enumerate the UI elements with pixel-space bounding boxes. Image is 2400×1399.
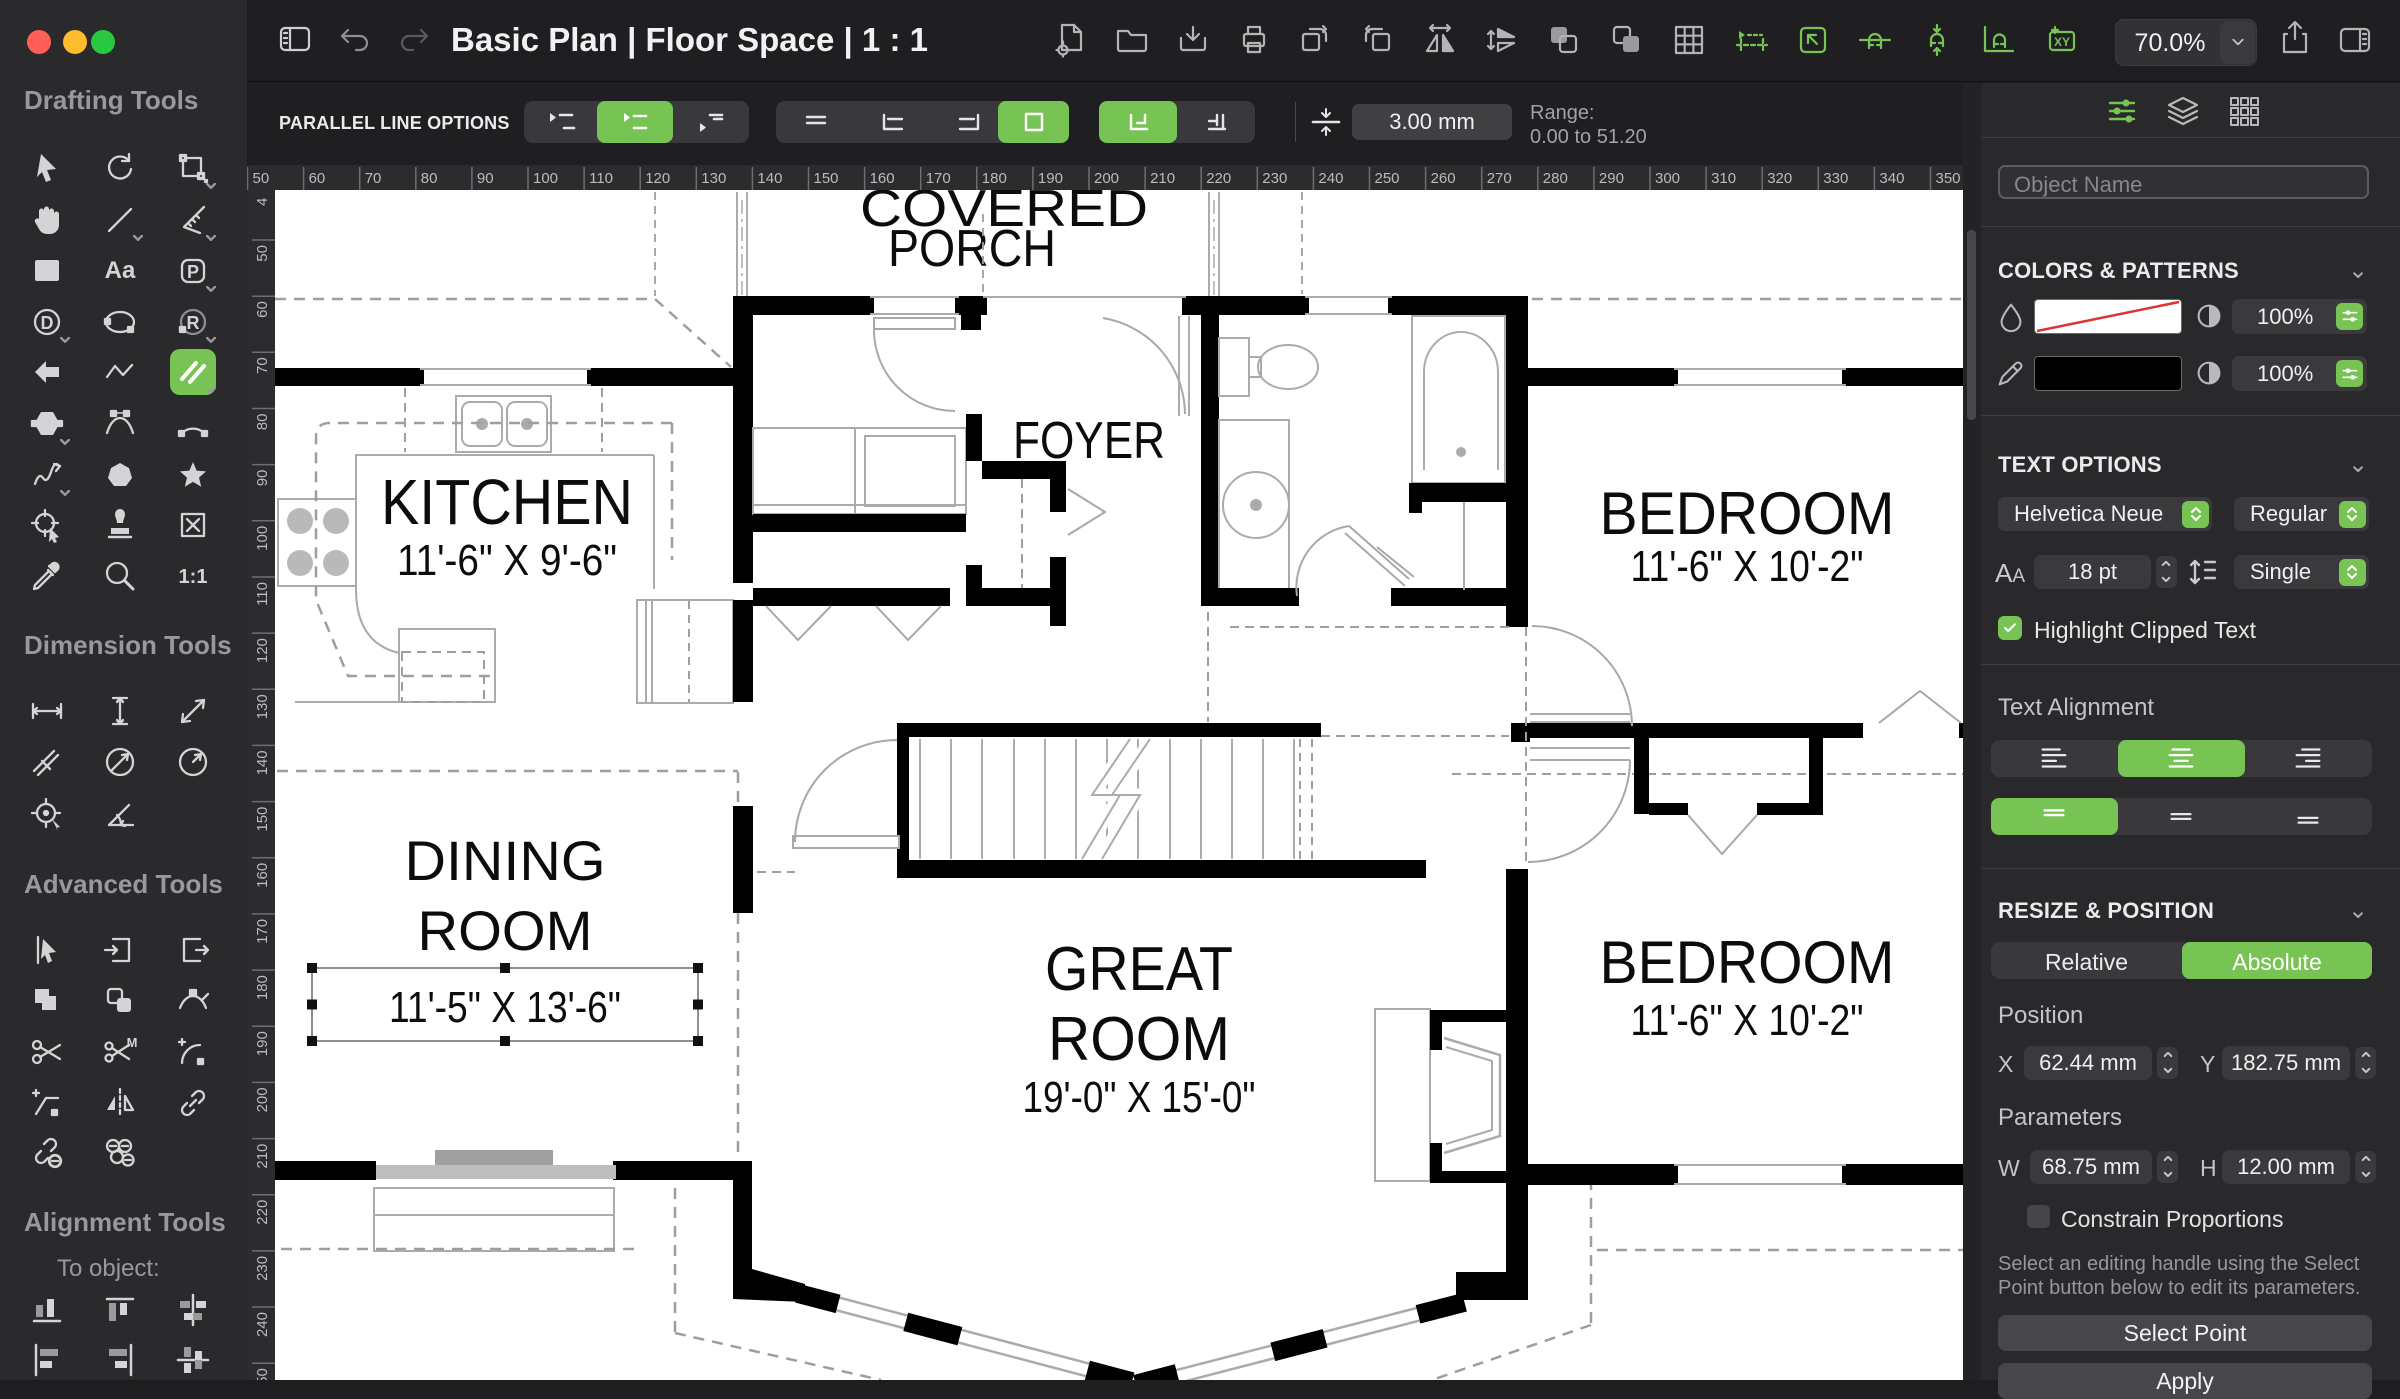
svg-text:140: 140 [757, 170, 782, 187]
svg-text:KITCHEN: KITCHEN [381, 466, 633, 538]
svg-text:350: 350 [1936, 170, 1961, 187]
svg-text:230: 230 [254, 1256, 271, 1281]
svg-text:280: 280 [1543, 170, 1568, 187]
svg-text:Aa: Aa [105, 257, 136, 284]
svg-text:240: 240 [254, 1312, 271, 1337]
svg-text:230: 230 [1262, 170, 1287, 187]
svg-text:330: 330 [1823, 170, 1848, 187]
svg-text:170: 170 [926, 170, 951, 187]
svg-text:PORCH: PORCH [888, 220, 1056, 278]
svg-text:4: 4 [254, 198, 271, 206]
svg-text:180: 180 [982, 170, 1007, 187]
svg-text:70: 70 [365, 170, 382, 187]
svg-text:11'-5" X 13'-6": 11'-5" X 13'-6" [389, 983, 621, 1032]
svg-text:60: 60 [309, 170, 326, 187]
svg-text:70: 70 [254, 357, 271, 374]
svg-text:11'-6" X 10'-2": 11'-6" X 10'-2" [1631, 996, 1864, 1045]
svg-text:190: 190 [254, 1031, 271, 1056]
svg-text:320: 320 [1767, 170, 1792, 187]
svg-text:XY: XY [2054, 35, 2070, 49]
svg-text:BEDROOM: BEDROOM [1600, 929, 1895, 996]
svg-text:80: 80 [421, 170, 438, 187]
svg-text:210: 210 [1150, 170, 1175, 187]
svg-text:GREAT: GREAT [1045, 935, 1233, 1004]
svg-text:200: 200 [1094, 170, 1119, 187]
svg-text:11'-6" X 10'-2": 11'-6" X 10'-2" [1631, 542, 1864, 591]
svg-text:D: D [41, 313, 54, 333]
svg-text:300: 300 [1655, 170, 1680, 187]
svg-text:290: 290 [1599, 170, 1624, 187]
svg-text:220: 220 [1206, 170, 1231, 187]
svg-text:60: 60 [254, 301, 271, 318]
svg-text:150: 150 [814, 170, 839, 187]
svg-text:270: 270 [1487, 170, 1512, 187]
svg-text:150: 150 [254, 807, 271, 832]
svg-text:140: 140 [254, 750, 271, 775]
svg-text:19'-0" X 15'-0": 19'-0" X 15'-0" [1023, 1073, 1256, 1122]
svg-text:ROOM: ROOM [1048, 1005, 1230, 1074]
svg-text:11'-6" X 9'-6": 11'-6" X 9'-6" [397, 536, 617, 585]
svg-text:80: 80 [254, 414, 271, 431]
svg-text:130: 130 [701, 170, 726, 187]
svg-text:100: 100 [533, 170, 558, 187]
svg-text:220: 220 [254, 1200, 271, 1225]
svg-text:160: 160 [870, 170, 895, 187]
svg-text:260: 260 [1431, 170, 1456, 187]
svg-text:ROOM: ROOM [418, 899, 593, 962]
svg-text:100: 100 [254, 526, 271, 551]
svg-text:310: 310 [1711, 170, 1736, 187]
svg-text:R: R [187, 313, 200, 333]
svg-text:130: 130 [254, 694, 271, 719]
svg-text:200: 200 [254, 1087, 271, 1112]
svg-text:P: P [187, 262, 199, 282]
svg-text:110: 110 [589, 170, 613, 187]
svg-text:120: 120 [645, 170, 670, 187]
svg-text:90: 90 [477, 170, 494, 187]
svg-text:170: 170 [254, 919, 271, 944]
svg-text:240: 240 [1318, 170, 1343, 187]
svg-text:250: 250 [254, 1368, 271, 1380]
svg-text:110: 110 [254, 582, 271, 606]
svg-text:210: 210 [254, 1144, 271, 1169]
svg-text:BEDROOM: BEDROOM [1600, 480, 1895, 547]
svg-text:1:1: 1:1 [179, 566, 208, 588]
svg-text:250: 250 [1375, 170, 1400, 187]
svg-text:190: 190 [1038, 170, 1063, 187]
svg-text:180: 180 [254, 975, 271, 1000]
svg-text:120: 120 [254, 638, 271, 663]
svg-text:50: 50 [254, 245, 271, 262]
svg-text:160: 160 [254, 863, 271, 888]
svg-text:340: 340 [1879, 170, 1904, 187]
svg-text:90: 90 [254, 470, 271, 487]
svg-text:DINING: DINING [405, 829, 606, 892]
svg-text:M: M [127, 1035, 138, 1050]
